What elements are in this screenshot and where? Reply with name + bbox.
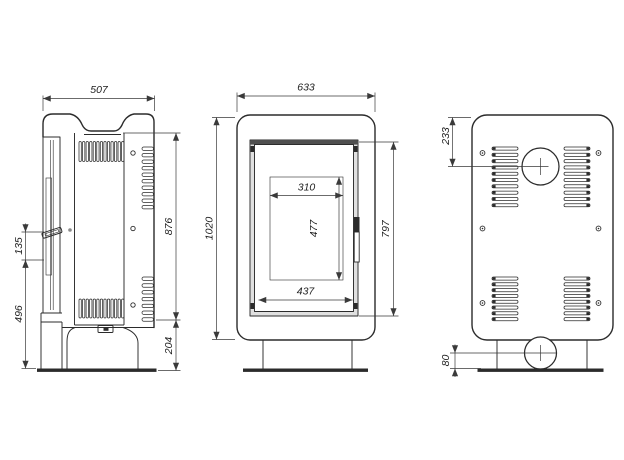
vent-slat	[100, 142, 102, 162]
dimension-value: 233	[440, 127, 452, 146]
vent-slat	[564, 160, 590, 163]
vent-slat	[492, 147, 518, 150]
vent-slat	[122, 299, 124, 318]
side-rear-bottom-vents	[142, 277, 154, 321]
vent-slat	[564, 153, 590, 156]
vent-slat	[492, 312, 518, 315]
vent-slat	[564, 277, 590, 280]
vent-slat	[564, 318, 590, 321]
vent-slat	[492, 191, 518, 194]
vent-slat	[79, 142, 81, 162]
vent-slat	[564, 147, 590, 150]
front-view	[237, 115, 375, 372]
stove-technical-drawing: 507 876 204 135 496 633	[0, 0, 624, 460]
vent-slat	[107, 299, 109, 318]
vent-slat	[104, 299, 106, 318]
door-handle-latch	[354, 217, 360, 232]
vent-slat	[93, 142, 95, 162]
vent-slat-end	[493, 204, 496, 206]
vent-slat-end	[493, 283, 496, 285]
vent-slat	[142, 154, 154, 157]
dim-side-handle-offset: 135	[13, 224, 44, 269]
vent-slat	[492, 160, 518, 163]
screw-icon	[131, 226, 135, 230]
vent-slat	[564, 179, 590, 182]
extension-line	[43, 96, 155, 112]
vent-slat	[142, 304, 154, 307]
vent-slat	[142, 291, 154, 294]
side-handle-pivot	[68, 228, 72, 232]
side-damper-latch	[98, 326, 113, 333]
vent-slat	[142, 297, 154, 300]
door-hinge-bottom-right	[354, 303, 358, 309]
vent-slat	[111, 299, 113, 318]
vent-slat	[492, 172, 518, 175]
vent-slat	[142, 284, 154, 287]
door-hinge-top-right	[354, 146, 358, 152]
vent-slat	[118, 299, 120, 318]
vent-slat	[90, 142, 92, 162]
dimension-value: 496	[13, 305, 25, 323]
vent-slat	[115, 142, 117, 162]
dim-front-width: 633	[237, 82, 375, 113]
side-handle-lever	[42, 227, 63, 238]
vent-slat	[115, 299, 117, 318]
side-handle-lever-inner	[45, 230, 59, 237]
back-floor-plate	[478, 369, 604, 372]
vent-slat-end	[586, 289, 589, 291]
vent-slat	[564, 300, 590, 303]
vent-slat	[142, 193, 154, 196]
dim-side-base-height: 204	[158, 320, 181, 371]
dimension-value: 80	[440, 355, 452, 367]
vent-slat	[492, 283, 518, 286]
vent-slat-end	[493, 185, 496, 187]
vent-slat-end	[586, 318, 589, 320]
vent-slat	[564, 312, 590, 315]
latch-knob	[104, 328, 109, 331]
door-frame-bottom-band	[251, 312, 358, 316]
vent-slat	[142, 180, 154, 183]
screw-center	[482, 152, 484, 154]
extension-line	[237, 93, 375, 113]
dim-front-height: 1020	[204, 118, 236, 340]
vent-slat-end	[493, 173, 496, 175]
vent-slat	[86, 142, 88, 162]
vent-slat-end	[586, 179, 589, 181]
vent-slat	[90, 299, 92, 318]
vent-slat	[100, 299, 102, 318]
vent-slat	[142, 318, 154, 321]
vent-slat	[142, 186, 154, 189]
screw-center	[482, 302, 484, 304]
dim-side-handle-height: 496	[13, 260, 36, 369]
door-frame-top-band	[251, 141, 358, 145]
front-pedestal	[263, 340, 352, 369]
vent-slat-end	[586, 204, 589, 206]
front-floor-plate	[243, 369, 368, 372]
vent-slat	[492, 294, 518, 297]
vent-slat	[104, 142, 106, 162]
vent-slat	[111, 142, 113, 162]
dimension-value: 507	[90, 84, 109, 96]
vent-slat-end	[586, 295, 589, 297]
vent-slat	[97, 142, 99, 162]
vent-slat	[564, 191, 590, 194]
vent-slat	[492, 277, 518, 280]
dimension-value: 310	[298, 182, 316, 194]
vent-slat-end	[493, 147, 496, 149]
vent-slat	[83, 142, 85, 162]
vent-slat-end	[586, 185, 589, 187]
vent-slat-end	[493, 289, 496, 291]
vent-slat	[492, 318, 518, 321]
dim-door-width: 437	[259, 286, 353, 301]
screw-icon	[131, 303, 135, 307]
vent-slat	[492, 306, 518, 309]
dimension-value: 797	[380, 219, 392, 238]
vent-slat-end	[493, 191, 496, 193]
side-panel-seams	[75, 133, 125, 325]
vent-slat-end	[493, 160, 496, 162]
vent-slat	[564, 289, 590, 292]
vent-slat	[564, 204, 590, 207]
back-view	[472, 115, 613, 372]
dimension-value: 437	[297, 286, 316, 298]
vent-slat-end	[586, 283, 589, 285]
vent-slat-end	[493, 306, 496, 308]
vent-slat-end	[493, 301, 496, 303]
dimension-value: 1020	[204, 217, 216, 241]
vent-slat	[142, 173, 154, 176]
back-top-vents-left	[492, 147, 518, 207]
vent-slat	[142, 199, 154, 202]
vent-slat	[142, 277, 154, 280]
vent-slat-end	[586, 312, 589, 314]
dim-side-width: 507	[43, 84, 155, 111]
vent-slat	[492, 153, 518, 156]
vent-slat	[118, 142, 120, 162]
vent-slat-end	[586, 173, 589, 175]
dimension-value: 204	[163, 337, 175, 356]
dimension-value: 477	[308, 219, 320, 238]
vent-slat	[492, 179, 518, 182]
vent-slat-end	[493, 277, 496, 279]
side-door-inner-lines	[51, 140, 54, 310]
dim-door-height: 797	[359, 142, 399, 316]
screw-center	[598, 228, 600, 230]
vent-slat-end	[493, 179, 496, 181]
vent-slat	[122, 142, 124, 162]
vent-slat-end	[586, 154, 589, 156]
screw-center	[598, 302, 600, 304]
side-top-vents	[79, 142, 124, 162]
vent-slat-end	[586, 191, 589, 193]
back-bottom-vents-left	[492, 277, 518, 321]
vent-slat	[564, 185, 590, 188]
vent-slat	[492, 197, 518, 200]
vent-slat-end	[586, 306, 589, 308]
vent-slat-end	[586, 147, 589, 149]
side-door-handle	[42, 227, 63, 238]
side-view	[37, 114, 157, 372]
screw-center	[598, 152, 600, 154]
dimension-value: 876	[163, 218, 175, 236]
vent-slat-end	[493, 318, 496, 320]
door-hinge-top-left	[251, 146, 255, 152]
screw-icon	[131, 151, 135, 155]
vent-slat-end	[586, 166, 589, 168]
dimension-value: 135	[13, 237, 25, 255]
vent-slat	[492, 185, 518, 188]
vent-slat	[97, 299, 99, 318]
door-handle-grip	[354, 232, 359, 262]
vent-slat-end	[586, 198, 589, 200]
vent-slat-end	[586, 277, 589, 279]
vent-slat-end	[493, 295, 496, 297]
vent-slat	[492, 300, 518, 303]
vent-slat	[83, 299, 85, 318]
side-rear-top-vents	[142, 147, 154, 209]
door-hinge-bottom-left	[251, 303, 255, 309]
vent-slat	[492, 289, 518, 292]
vent-slat	[93, 299, 95, 318]
vent-slat-end	[493, 198, 496, 200]
side-pedestal	[67, 328, 138, 369]
vent-slat	[86, 299, 88, 318]
vent-slat	[142, 206, 154, 209]
vent-slat	[142, 167, 154, 170]
back-bottom-vents-right	[564, 277, 590, 321]
side-bottom-step	[41, 313, 62, 369]
vent-slat	[564, 294, 590, 297]
vent-slat	[564, 197, 590, 200]
extension-line	[359, 142, 399, 316]
vent-slat	[79, 299, 81, 318]
dim-glass-width: 310	[270, 182, 343, 196]
vent-slat	[564, 306, 590, 309]
dimension-value: 633	[297, 82, 315, 94]
side-bottom-vents	[79, 299, 124, 318]
screw-center	[482, 228, 484, 230]
vent-slat-end	[493, 154, 496, 156]
vent-slat	[142, 147, 154, 150]
vent-slat	[564, 166, 590, 169]
side-screws	[131, 151, 135, 307]
technical-drawing-page: 507 876 204 135 496 633	[0, 0, 624, 460]
vent-slat	[492, 204, 518, 207]
back-top-vents-right	[564, 147, 590, 207]
vent-slat	[564, 172, 590, 175]
vent-slat	[142, 160, 154, 163]
vent-slat	[142, 311, 154, 314]
vent-slat-end	[586, 301, 589, 303]
vent-slat-end	[493, 312, 496, 314]
door-frame-left-band	[251, 141, 255, 316]
side-floor-plate	[37, 369, 157, 372]
vent-slat	[564, 283, 590, 286]
vent-slat	[107, 142, 109, 162]
vent-slat-end	[586, 160, 589, 162]
